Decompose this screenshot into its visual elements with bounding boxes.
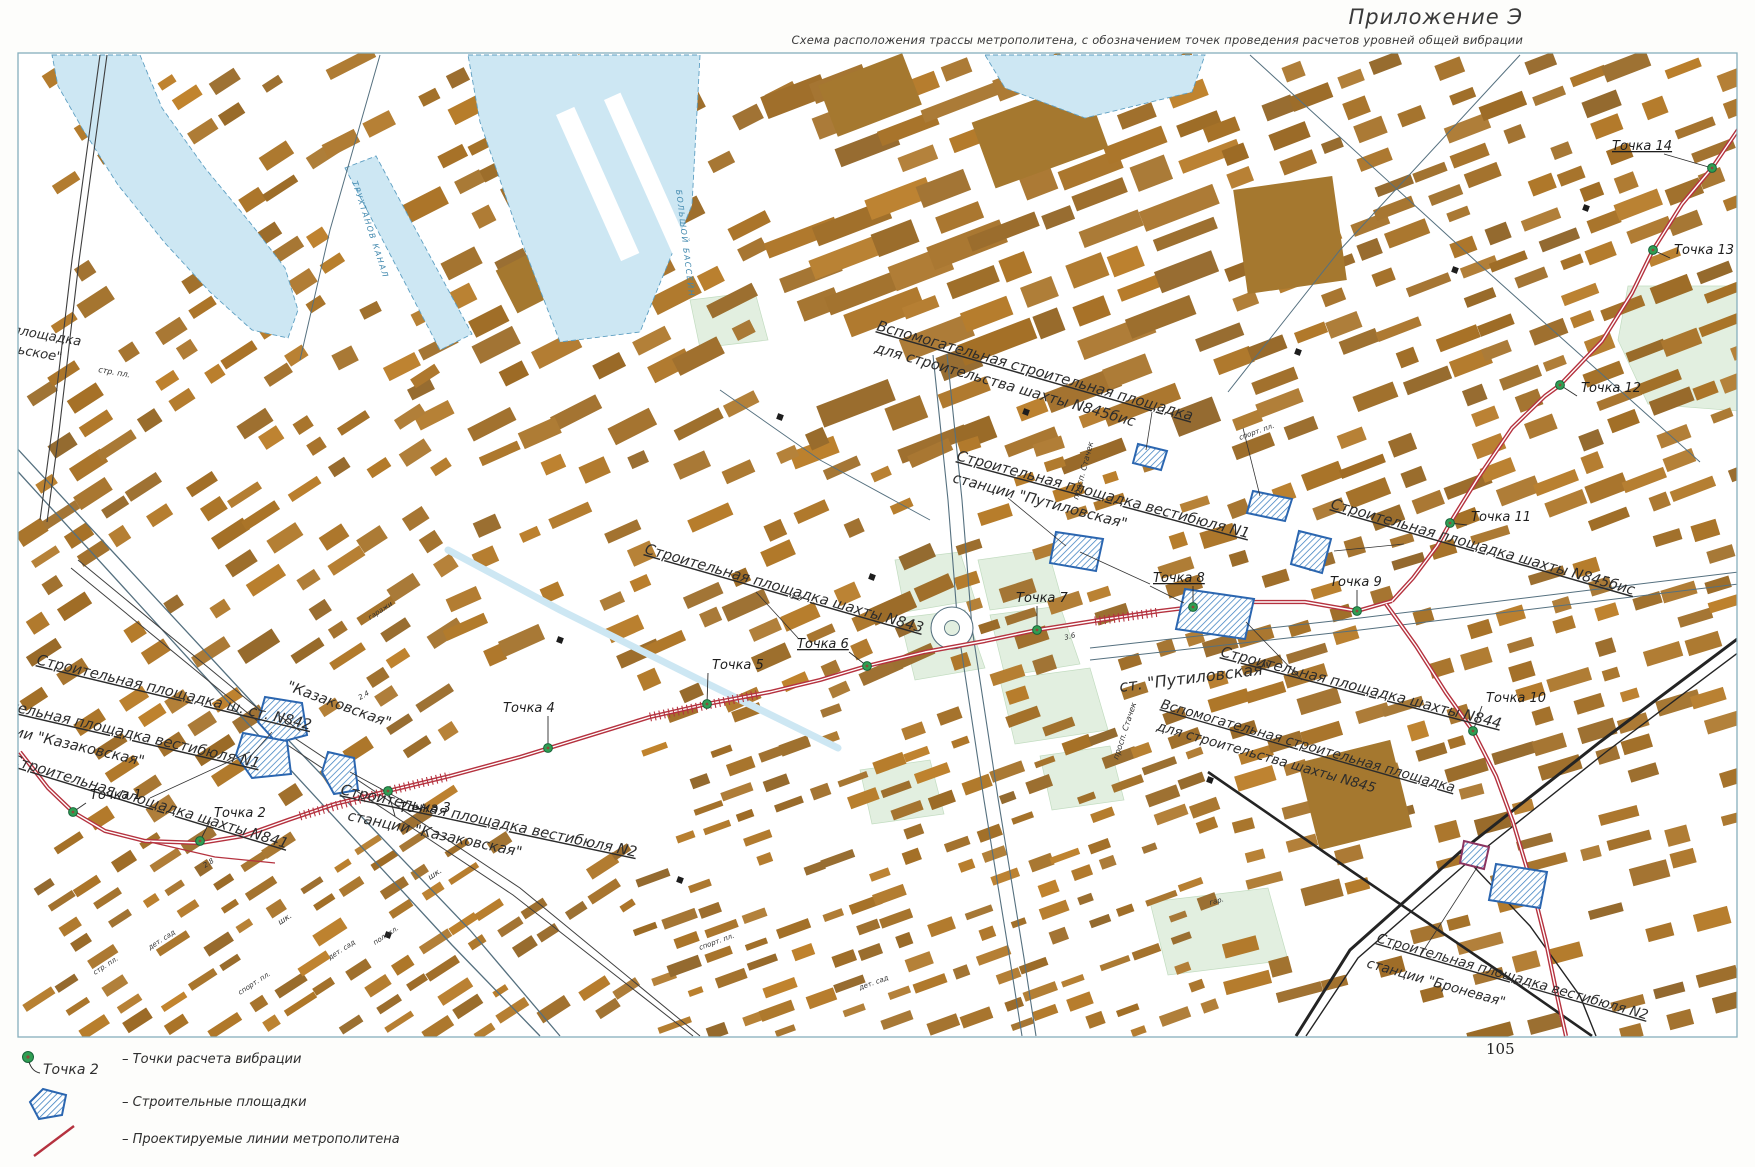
map-content: Строительная площадка"Красносельское"Стр… — [0, 23, 1755, 1047]
point-marker-center — [1472, 730, 1475, 733]
map: Строительная площадка"Красносельское"Стр… — [0, 0, 1755, 1167]
title-block: Приложение Э Схема расположения трассы м… — [791, 5, 1523, 47]
point-label: Точка 8 — [1153, 571, 1205, 586]
point-marker-center — [706, 703, 709, 706]
point-label: Точка 11 — [1471, 510, 1531, 525]
point-marker-center — [199, 840, 202, 843]
appendix-title: Приложение Э — [791, 5, 1523, 29]
scheme-subtitle: Схема расположения трассы метрополитена,… — [791, 33, 1523, 47]
point-marker-center — [1449, 522, 1452, 525]
point-label: Точка 9 — [1330, 575, 1382, 590]
point-label: Точка 12 — [1581, 381, 1641, 396]
construction-site — [1460, 841, 1489, 869]
point-marker-center — [1559, 384, 1562, 387]
legend-item-points: – Точки расчета вибрации — [122, 1052, 301, 1067]
sheet: Строительная площадка"Красносельское"Стр… — [0, 0, 1755, 1167]
construction-site — [1176, 589, 1254, 639]
point-label: Точка 5 — [712, 658, 764, 673]
legend: Точка 2 – Точки расчета вибрации – Строи… — [18, 1046, 578, 1164]
point-label: Точка 4 — [503, 701, 555, 716]
roundabout-island — [945, 621, 960, 636]
point-marker-center — [1192, 606, 1195, 609]
point-marker-center — [1652, 249, 1655, 252]
legend-point-sample-label: Точка 2 — [43, 1062, 99, 1078]
page: { "page": { "title": "Приложение Э", "su… — [0, 0, 1755, 1167]
legend-line-icon — [26, 1120, 86, 1162]
point-marker-center — [866, 665, 869, 668]
building-large — [1233, 176, 1347, 294]
construction-site — [1050, 532, 1103, 571]
page-number: 105 — [1486, 1040, 1515, 1058]
point-label: Точка 6 — [797, 637, 849, 652]
point-marker-center — [72, 811, 75, 814]
point-label: Точка 13 — [1674, 243, 1734, 258]
point-marker-center — [1356, 610, 1359, 613]
point-marker-center — [1711, 167, 1714, 170]
point-marker-center — [387, 790, 390, 793]
point-label: Точка 14 — [1612, 139, 1672, 154]
point-marker-center — [547, 747, 550, 750]
construction-site — [1489, 864, 1547, 908]
point-label: Точка 7 — [1016, 591, 1069, 606]
legend-site-icon — [26, 1086, 74, 1122]
point-label: Точка 1 — [90, 788, 142, 803]
point-label: Точка 2 — [214, 806, 266, 821]
point-label: Точка 3 — [399, 801, 451, 816]
legend-item-sites: – Строительные площадки — [122, 1095, 307, 1110]
point-marker-center — [1036, 629, 1039, 632]
legend-item-metro-lines: – Проектируемые линии метрополитена — [122, 1132, 400, 1147]
point-label: Точка 10 — [1486, 691, 1546, 706]
